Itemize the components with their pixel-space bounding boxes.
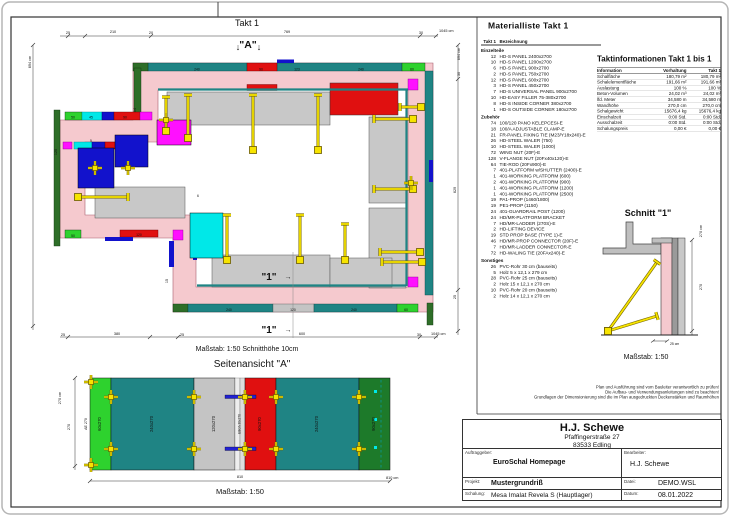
prop-foot [163, 128, 170, 135]
drawing-label: 30 [457, 72, 461, 76]
takt-info-cell: 0:00 Std. [687, 120, 722, 125]
drawing-label: Takt 1 [235, 18, 259, 28]
clamp-symbol [93, 166, 98, 171]
prop-foot [224, 257, 231, 264]
panel-rect [140, 112, 152, 120]
panel-rect [114, 112, 140, 120]
drawing-label: 380 [114, 332, 120, 336]
prop-foot [419, 259, 426, 266]
drawing-label: AE 270 [84, 418, 88, 430]
takt-info-cell: Schalungspreis [597, 126, 652, 131]
panel-rect [425, 71, 433, 295]
drawing-label: ↓ [257, 42, 262, 52]
drawing-label: 240 [351, 308, 357, 312]
disclaimer-text: Plan und Ausführung sind vom Bauleiter v… [459, 385, 719, 400]
drawing-label: 90 [259, 68, 263, 72]
takt-info-cell: Vorhaltung [652, 68, 687, 73]
drawing-label: 270 [699, 284, 703, 290]
takt-info-cell: Schalfläche [597, 74, 652, 79]
clamp-symbol [243, 447, 248, 452]
takt-info-cell: 191,66 m² [687, 80, 722, 85]
drawing-label: 60 [410, 68, 414, 72]
drawing-label: 810 cm [386, 476, 398, 480]
clamp-symbol [126, 166, 131, 171]
takt-info-table: InformationVorhaltungTakt 1Schalfläche18… [597, 68, 721, 132]
takt-info-cell: lfd. Meter [597, 97, 652, 102]
panel-rect [652, 238, 672, 243]
material-qty: 2 [481, 293, 496, 299]
drawing-label: 50 [71, 116, 75, 120]
panel-rect [374, 390, 377, 393]
drawing-label: 25 [453, 295, 457, 299]
material-list: Materialliste Takt 1 Takt 1 Bezeichnung … [481, 19, 601, 299]
drawing-label: 20 [149, 31, 153, 35]
takt-info-cell: Beton-Volumen [597, 91, 652, 96]
takt-info-row: Schalungspreis0,00 €0,00 € [597, 126, 721, 132]
material-row: 72HD-WALING TIE (20FAx240)-E [481, 250, 601, 256]
panel-rect [63, 142, 72, 149]
material-row: 2Holz 14 x 12,1 x 270 cm [481, 293, 601, 299]
drawing-label: "1" [261, 272, 276, 283]
panel-rect [102, 112, 114, 120]
drawing-label: 120 [136, 233, 142, 237]
takt-info-cell: 0:00 Std. [652, 120, 687, 125]
takt-info-cell: 34,580 m [687, 97, 722, 102]
drawing-label: 15 [165, 279, 169, 283]
drawing-label: 25 [180, 333, 184, 337]
takt-info-cell: 0,00 € [652, 126, 687, 131]
drawing-label: → [285, 327, 292, 334]
takt-info-cell: 24,02 m³ [687, 91, 722, 96]
takt-info-cell: 24,02 m³ [652, 91, 687, 96]
panel-rect [169, 241, 174, 267]
material-qty: 1 [481, 106, 496, 112]
takt-info-cell: Ausschalzeit [597, 120, 652, 125]
drawing-label: 90x270 [257, 416, 262, 430]
clamp-symbol [192, 447, 197, 452]
project-value: Mustergrundriß [491, 480, 543, 487]
drawing-label: 30 [419, 31, 423, 35]
drawing-label: 270 [67, 424, 71, 430]
company-street: Pfaffingerstraße 27 [463, 434, 721, 442]
panel-rect [95, 187, 185, 218]
clamp-symbol [89, 380, 94, 385]
drawing-label: 6 [197, 194, 199, 198]
takt-info-title: Taktinformationen Takt 1 bis 1 [597, 55, 721, 64]
panel-rect [678, 238, 685, 335]
prop-symbol [608, 262, 657, 331]
company-name: H.J. Schewe [463, 420, 721, 434]
drawing-label: 1045 cm [431, 332, 446, 336]
drawing-label: 629 [453, 187, 457, 193]
drawing-label: 270 cm [699, 225, 703, 237]
panel-rect [672, 238, 678, 335]
column-qty: Takt 1 [481, 39, 496, 44]
plan-sheet: { "colors":{"wall_pink":"#f5c9ce","panel… [0, 0, 730, 516]
date-label: Datum: [624, 491, 639, 496]
takt-info-cell: 180,79 m² [687, 74, 722, 79]
material-list-title: Materialliste Takt 1 [488, 21, 601, 31]
drawing-label: 240x270 [314, 415, 319, 432]
editor-value: H.J. Schewe [630, 461, 669, 468]
panel-rect [105, 237, 133, 241]
drawing-label: 240x270 [149, 415, 154, 432]
client-label: Auftraggeber: [465, 450, 492, 455]
drawing-label: 240 [358, 68, 364, 72]
takt-info-cell: 180,79 m² [652, 74, 687, 79]
panel-rect [173, 304, 188, 312]
panel-rect [408, 277, 418, 287]
panel-rect [661, 238, 672, 335]
panel-rect [167, 92, 330, 125]
clamp-symbol [357, 395, 362, 400]
takt-info-cell: Wandhöhe [597, 103, 652, 108]
drawing-label: 25 cm [670, 342, 679, 346]
drawing-label: → [285, 274, 292, 281]
prop-foot [75, 194, 82, 201]
clamp-symbol [109, 447, 114, 452]
takt-info-cell: 270,0 cm [687, 103, 722, 108]
drawing-label: 810 [237, 475, 243, 479]
project-label: Projekt: [465, 479, 480, 484]
date-value: 08.01.2022 [658, 492, 693, 499]
drawing-label: "A" [239, 39, 257, 51]
editor-label: Bearbeiter: [624, 450, 646, 455]
clamp-symbol [243, 395, 248, 400]
drawing-label: Maßstab: 1:50 [624, 354, 669, 361]
drawing-label: 60 [404, 308, 408, 312]
drawing-label: 25 [66, 31, 70, 35]
disclaimer-line: Grundlagen der Dimensionierung sind die … [459, 395, 719, 400]
drawing-label: 123 [294, 68, 300, 72]
drawing-label: 240 [194, 68, 200, 72]
drawing-label: Schnitt "1" [625, 208, 672, 218]
takt-info-cell: 0:00 Std. [687, 114, 722, 119]
drawing-label: 769 [284, 30, 290, 34]
drawing-label: 694 cm [28, 56, 32, 68]
material-name: Holz 14 x 12,1 x 270 cm [500, 293, 550, 299]
clamp-symbol [89, 463, 94, 468]
panel-rect [429, 160, 433, 182]
drawing-label: 240 [226, 308, 232, 312]
panel-rect [173, 230, 183, 240]
panel-rect [115, 135, 148, 167]
drawing-label: 45 [89, 116, 93, 120]
takt-info-cell: Schalelementfläche [597, 80, 652, 85]
clamp-symbol [192, 395, 197, 400]
prop-foot [185, 135, 192, 142]
drawing-label: 30 [417, 333, 421, 337]
drawing-label: Maßstab: 1:50 [216, 487, 264, 496]
drawing-label: EBGh 30x270 [238, 414, 242, 434]
panel-rect [54, 110, 60, 246]
material-list-header: Takt 1 Bezeichnung [481, 39, 601, 46]
takt-info-cell: 34,580 m [652, 97, 687, 102]
row-project: Projekt: Mustergrundriß Datei: DEMO.WSL [463, 478, 721, 490]
prop-foot [410, 116, 417, 123]
prop-foot [605, 328, 612, 335]
drawing-label: 120 [54, 149, 58, 155]
takt-info-cell: 15676,4 kg [687, 109, 722, 114]
panel-rect [330, 83, 398, 115]
material-name: HD-WALING TIE (20FAx240)-E [500, 250, 565, 256]
takt-info-cell: 270,0 cm [652, 103, 687, 108]
row-formwork: Schalung: Mesa Imalat Revela S (Hauptlag… [463, 490, 721, 501]
takt-info-cell: 191,66 m² [652, 80, 687, 85]
material-row: 1HD-S OUTSIDE CORNER 180x2700 [481, 106, 601, 112]
takt-info-panel: Taktinformationen Takt 1 bis 1 Informati… [597, 55, 721, 132]
drawing-label: 600 [299, 332, 305, 336]
file-label: Datei: [624, 479, 636, 484]
takt-info-cell: Auslastung [597, 85, 652, 90]
clamp-symbol [274, 447, 279, 452]
panel-rect [427, 303, 433, 325]
drawing-label: Maßstab: 1:50 Schnitthöhe 10cm [196, 346, 299, 353]
drawing-label: 5 [90, 139, 92, 143]
company-city: 83533 Edling [463, 442, 721, 450]
drawing-label: 694 cm [457, 48, 461, 60]
clamp-symbol [164, 118, 169, 123]
drawing-label: 14 [133, 108, 137, 112]
drawing-label: 90 [123, 116, 127, 120]
takt-info-cell: 100 % [652, 85, 687, 90]
prop-foot [297, 257, 304, 264]
drawing-label: 1045 cm [439, 29, 454, 33]
takt-info-cell: Information [597, 68, 652, 73]
drawing-label: 210 [110, 30, 116, 34]
panel-rect [277, 60, 294, 64]
material-qty: 72 [481, 250, 496, 256]
prop-foot [418, 104, 425, 111]
takt-info-cell: 0:00 Std. [652, 114, 687, 119]
material-list-body: Einzelteile12HD-S PANEL 2400x270010HD-S … [481, 47, 601, 299]
title-block: H.J. Schewe Pfaffingerstraße 27 83533 Ed… [462, 419, 722, 501]
file-value: DEMO.WSL [658, 480, 696, 487]
drawing-label: Seitenansicht "A" [214, 359, 291, 370]
clamp-symbol [357, 447, 362, 452]
drawing-label: 60x270 [97, 416, 102, 430]
formwork-value: Mesa Imalat Revela S (Hauptlager) [491, 492, 593, 499]
drawing-label: 90x270 [371, 416, 376, 430]
clamp-symbol [409, 181, 414, 186]
material-name: HD-S OUTSIDE CORNER 180x2700 [500, 106, 577, 112]
prop-foot [342, 257, 349, 264]
clamp-symbol [109, 395, 114, 400]
clamp-symbol [274, 395, 279, 400]
panel-rect [190, 213, 223, 258]
takt-info-cell: 15676,4 kg [652, 109, 687, 114]
drawing-label: 25 [61, 333, 65, 337]
panel-rect [408, 79, 418, 90]
prop-foot [417, 249, 424, 256]
drawing-label: 120 [290, 308, 296, 312]
drawing-label: "1" [261, 325, 276, 336]
takt-info-cell: Schalgewicht [597, 109, 652, 114]
client-value: EuroSchal Homepage [493, 459, 565, 466]
drawing-label: 50 [71, 234, 75, 238]
formwork-label: Schalung: [465, 491, 485, 496]
company-header: H.J. Schewe Pfaffingerstraße 27 83533 Ed… [463, 420, 721, 449]
row-client: Auftraggeber: EuroSchal Homepage Bearbei… [463, 449, 721, 478]
prop-foot [315, 147, 322, 154]
column-name: Bezeichnung [500, 39, 528, 44]
takt-info-cell: 0,00 € [687, 126, 722, 131]
takt-info-cell: Takt 1 [687, 68, 722, 73]
prop-foot [250, 147, 257, 154]
drawing-label: 120x270 [211, 415, 216, 432]
panel-rect [134, 68, 141, 113]
takt-info-cell: Einschalzeit [597, 114, 652, 119]
panel-rect [374, 446, 377, 449]
drawing-label: 270 cm [58, 392, 62, 404]
takt-info-cell: 100 % [687, 85, 722, 90]
